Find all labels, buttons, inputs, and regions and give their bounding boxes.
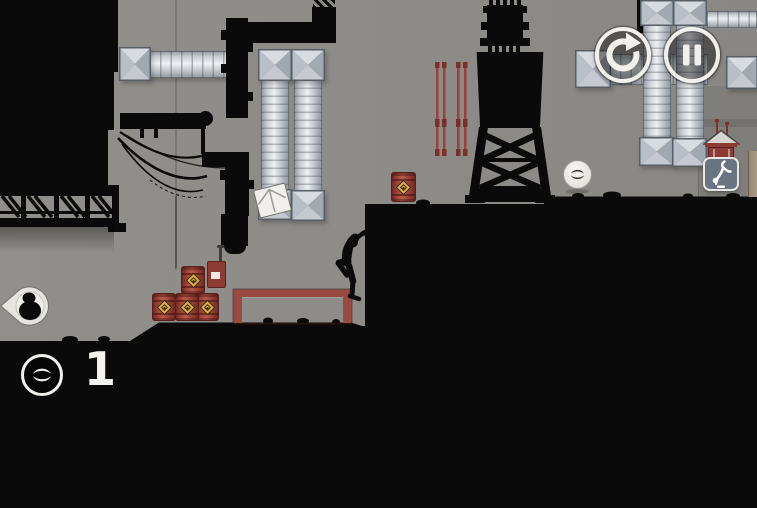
trick-sign — [703, 157, 739, 191]
bonus-counter-badge — [21, 354, 63, 396]
sign-pole-cap — [217, 245, 224, 248]
antenna-knob — [715, 119, 719, 122]
warning-sign — [207, 261, 226, 288]
parkour-trick-figure-icon — [706, 160, 736, 189]
sign-sticker — [211, 272, 220, 279]
vector-coin-icon — [568, 165, 587, 184]
bonus-counter-value: 1 — [84, 346, 116, 392]
restart-button[interactable] — [595, 27, 651, 83]
pause-button[interactable] — [664, 27, 720, 83]
hazard-barrel — [152, 293, 176, 321]
game-viewport: 1 — [0, 0, 757, 508]
antenna-knob — [725, 122, 729, 125]
vector-logo-icon — [29, 362, 55, 388]
wooden-strip — [748, 151, 757, 197]
sign-pole — [219, 247, 222, 262]
player-character — [330, 225, 375, 305]
pursuer-indicator — [0, 281, 52, 331]
pause-icon — [668, 31, 716, 79]
hazard-barrel — [175, 293, 199, 321]
collectible-coin — [563, 160, 592, 189]
restart-arrow-icon — [599, 31, 647, 79]
coin-shadow — [566, 189, 589, 194]
hazard-barrel — [181, 266, 205, 294]
